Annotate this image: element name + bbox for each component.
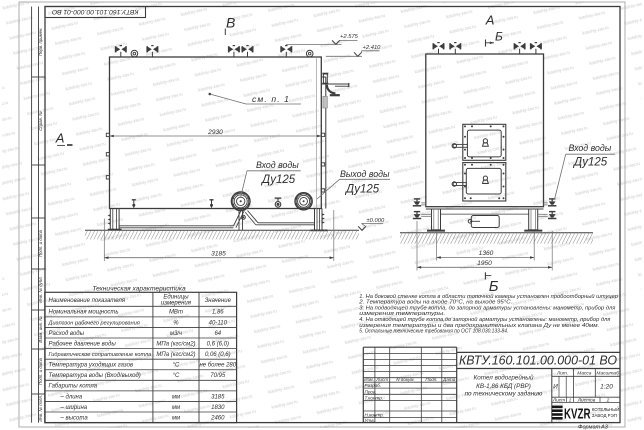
svg-text:А3: А3	[600, 424, 609, 430]
svg-text:Номинальная мощность: Номинальная мощность	[49, 310, 119, 316]
svg-text:+2.410: +2.410	[363, 45, 382, 51]
svg-text:0,06 (0,6): 0,06 (0,6)	[205, 352, 231, 358]
svg-text:А: А	[485, 13, 495, 28]
svg-text:Взам. инв. №: Взам. инв. №	[38, 316, 43, 343]
svg-text:КОТЕЛЬНЫЙ: КОТЕЛЬНЫЙ	[592, 407, 620, 412]
svg-text:70/95: 70/95	[210, 373, 226, 379]
svg-text:2930: 2930	[207, 129, 223, 136]
svg-text:ЗАВОД РЭП: ЗАВОД РЭП	[592, 413, 617, 418]
svg-text:измерения: измерения	[161, 301, 192, 307]
svg-text:Температура воды (Вход/выход): Температура воды (Вход/выход)	[49, 373, 141, 379]
svg-text:КВТУ.160.101.00.000-01 ВО: КВТУ.160.101.00.000-01 ВО	[459, 352, 617, 367]
svg-text:МПа (кгс/см2): МПа (кгс/см2)	[156, 352, 195, 358]
svg-text:1950: 1950	[477, 260, 492, 267]
svg-text:Температура уходящих газов: Температура уходящих газов	[49, 363, 134, 369]
svg-text:Справ. №: Справ. №	[38, 111, 43, 131]
svg-text:Лист: Лист	[375, 377, 388, 382]
svg-text:КВ-1,86 КБД (РВР): КВ-1,86 КБД (РВР)	[476, 383, 531, 390]
svg-text:И: И	[553, 384, 558, 391]
svg-text:Наименование показателя: Наименование показателя	[49, 298, 126, 304]
svg-text:Ду125: Ду125	[260, 174, 296, 186]
svg-text:Дата: Дата	[442, 377, 456, 382]
svg-text:Масса: Масса	[577, 371, 592, 377]
svg-text:В: В	[226, 15, 235, 31]
svg-text:1830: 1830	[211, 405, 225, 411]
svg-text:Формат: Формат	[578, 424, 601, 430]
svg-text:0,6 (6,0): 0,6 (6,0)	[207, 341, 229, 347]
svg-text:мм: мм	[172, 415, 180, 421]
svg-text:5. Остальные технические требо: 5. Остальные технические требования по О…	[359, 329, 508, 335]
svg-text:см. п. 1: см. п. 1	[252, 94, 290, 104]
svg-text:Перв. примен.: Перв. примен.	[38, 27, 43, 56]
svg-text:+2.575: +2.575	[340, 34, 359, 40]
svg-text:Ду125: Ду125	[572, 157, 608, 169]
svg-text:Разраб.: Разраб.	[365, 383, 382, 388]
svg-text:Б: Б	[495, 30, 503, 44]
svg-text:Значение: Значение	[205, 298, 232, 304]
svg-text:МВт: МВт	[169, 310, 183, 316]
svg-text:Масштаб: Масштаб	[596, 371, 619, 377]
svg-text:Диапазон рабочего регулировани: Диапазон рабочего регулирования	[48, 320, 140, 326]
svg-text:°С: °С	[173, 373, 180, 379]
svg-text:– длина: – длина	[60, 394, 83, 400]
svg-text:Инв. № подл.: Инв. № подл.	[38, 395, 43, 422]
svg-text:– ширина: – ширина	[60, 405, 88, 411]
svg-text:Расход воды: Расход воды	[49, 331, 85, 337]
svg-text:1:20: 1:20	[600, 384, 613, 391]
svg-text:Вход воды: Вход воды	[256, 160, 299, 170]
svg-text:Н.контр.: Н.контр.	[365, 413, 384, 418]
svg-text:Подп. и дата: Подп. и дата	[38, 357, 43, 385]
svg-text:не более 280: не более 280	[199, 363, 236, 369]
svg-text:40-110: 40-110	[209, 320, 228, 326]
svg-text:1,86: 1,86	[212, 310, 224, 316]
svg-text:Техническая характеристика: Техническая характеристика	[92, 285, 186, 292]
svg-text:мм: мм	[172, 394, 180, 400]
svg-text:Утв.: Утв.	[365, 418, 375, 423]
svg-text:Подп. и дата: Подп. и дата	[38, 229, 43, 257]
svg-text:±0.000: ±0.000	[367, 218, 385, 224]
svg-text:КВТУ.160.101.00.000-01 ВО: КВТУ.160.101.00.000-01 ВО	[51, 8, 138, 15]
svg-text:Пров.: Пров.	[365, 389, 377, 394]
svg-text:м3/ч: м3/ч	[170, 331, 182, 337]
svg-text:%: %	[173, 320, 179, 326]
svg-text:Подп.: Подп.	[425, 377, 437, 382]
svg-text:Ду125: Ду125	[344, 184, 380, 196]
svg-text:Рабочее давление воды: Рабочее давление воды	[49, 341, 117, 347]
svg-text:Т.контр.: Т.контр.	[365, 396, 384, 401]
svg-text:KVZR: KVZR	[564, 406, 591, 422]
svg-text:мм: мм	[172, 405, 180, 411]
svg-text:Б: Б	[489, 278, 499, 295]
svg-text:МПа (кгс/см2): МПа (кгс/см2)	[156, 341, 195, 347]
svg-text:°С: °С	[173, 363, 180, 369]
svg-text:А: А	[55, 130, 65, 145]
svg-text:Выход воды: Выход воды	[340, 169, 390, 179]
svg-text:Гидравлическое сопративление к: Гидравлическое сопративление котла	[49, 352, 152, 358]
svg-text:по техническому заданию: по техническому заданию	[465, 390, 543, 398]
svg-text:1360: 1360	[479, 250, 494, 257]
svg-text:Лит.: Лит.	[556, 371, 568, 377]
svg-text:N докум.: N докум.	[396, 377, 415, 382]
svg-text:3185: 3185	[211, 250, 226, 257]
svg-text:Котел водогрейный: Котел водогрейный	[474, 373, 534, 381]
svg-text:Габариты котла: Габариты котла	[49, 384, 98, 390]
svg-text:64: 64	[214, 331, 221, 337]
svg-text:– высота: – высота	[60, 415, 89, 421]
svg-text:Инв. № дубл.: Инв. № дубл.	[38, 276, 43, 302]
svg-text:2460: 2460	[210, 415, 225, 421]
svg-text:Вход воды: Вход воды	[569, 143, 612, 153]
svg-text:Изм.: Изм.	[364, 377, 374, 382]
svg-text:3185: 3185	[211, 394, 225, 400]
